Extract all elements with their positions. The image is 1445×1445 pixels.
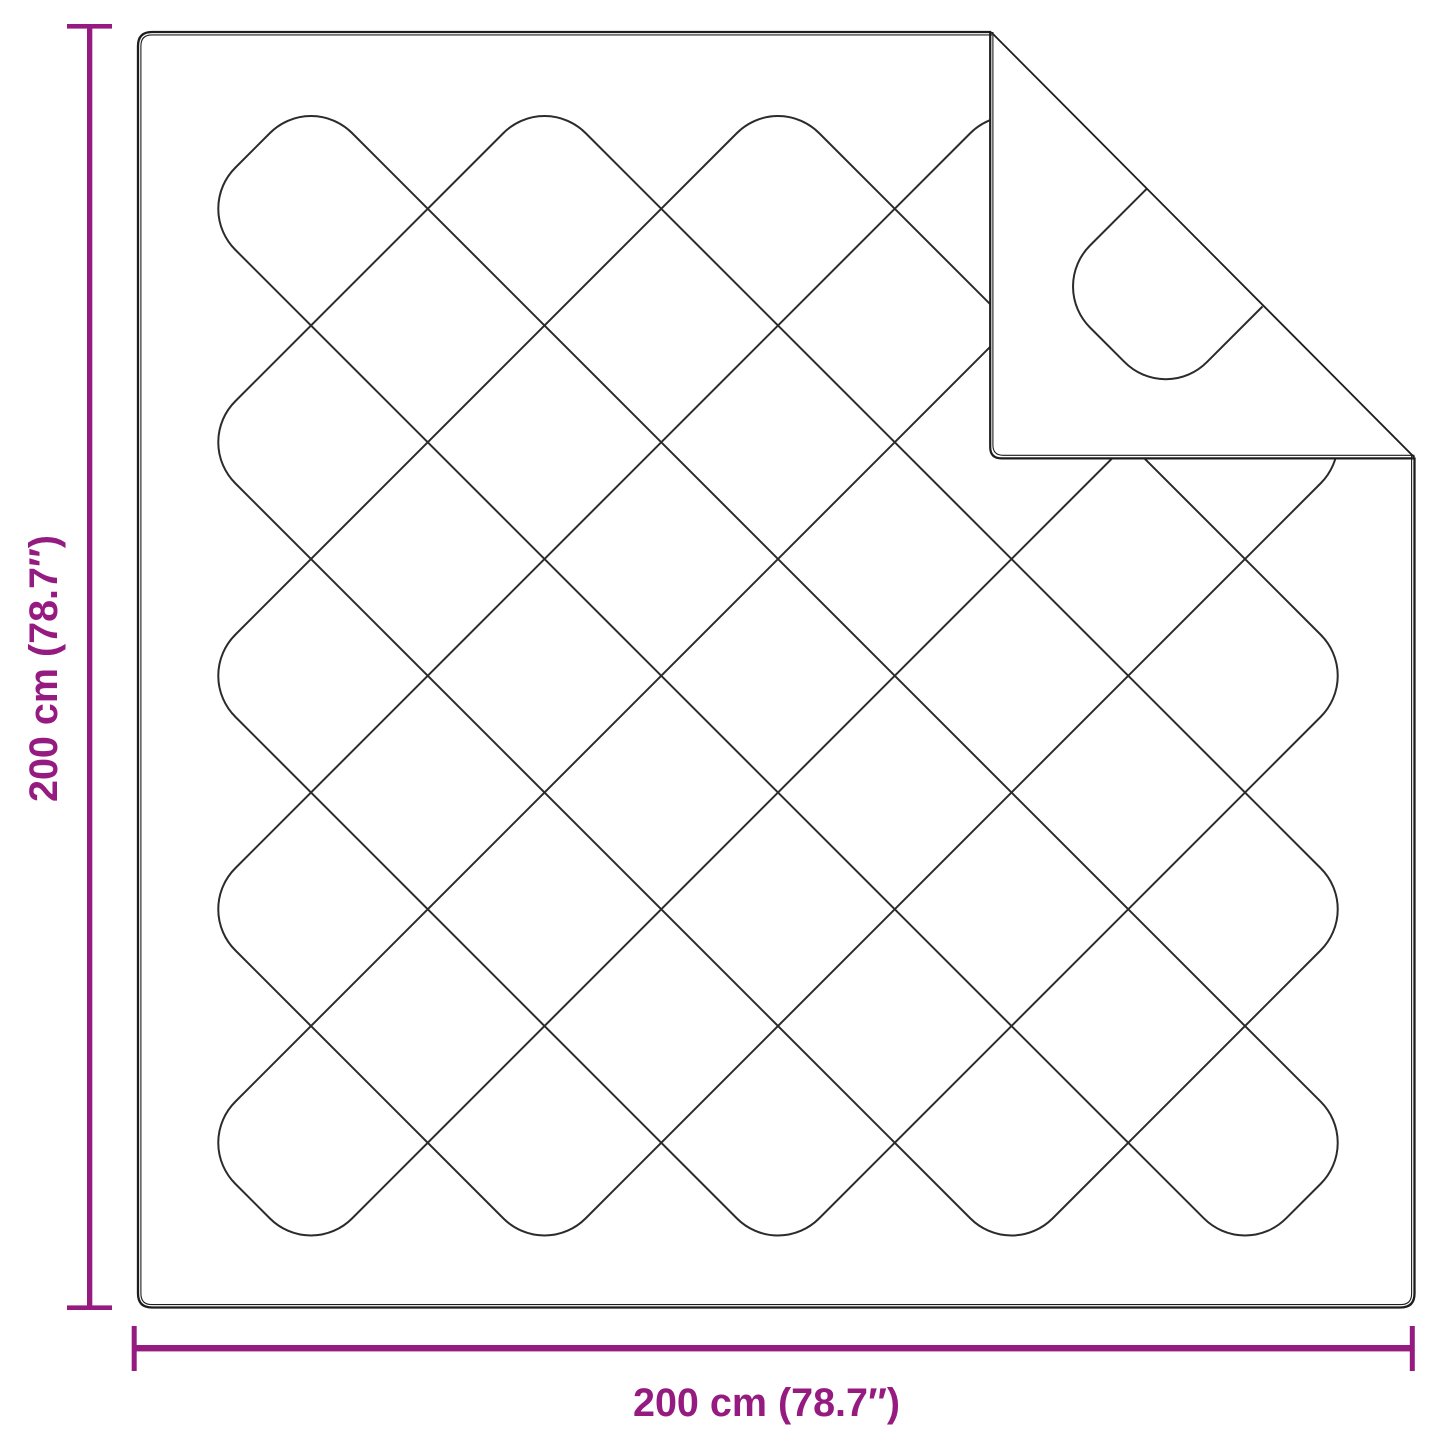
svg-text:200 cm (78.7″): 200 cm (78.7″) bbox=[633, 1381, 900, 1425]
svg-text:200 cm (78.7″): 200 cm (78.7″) bbox=[22, 535, 66, 802]
